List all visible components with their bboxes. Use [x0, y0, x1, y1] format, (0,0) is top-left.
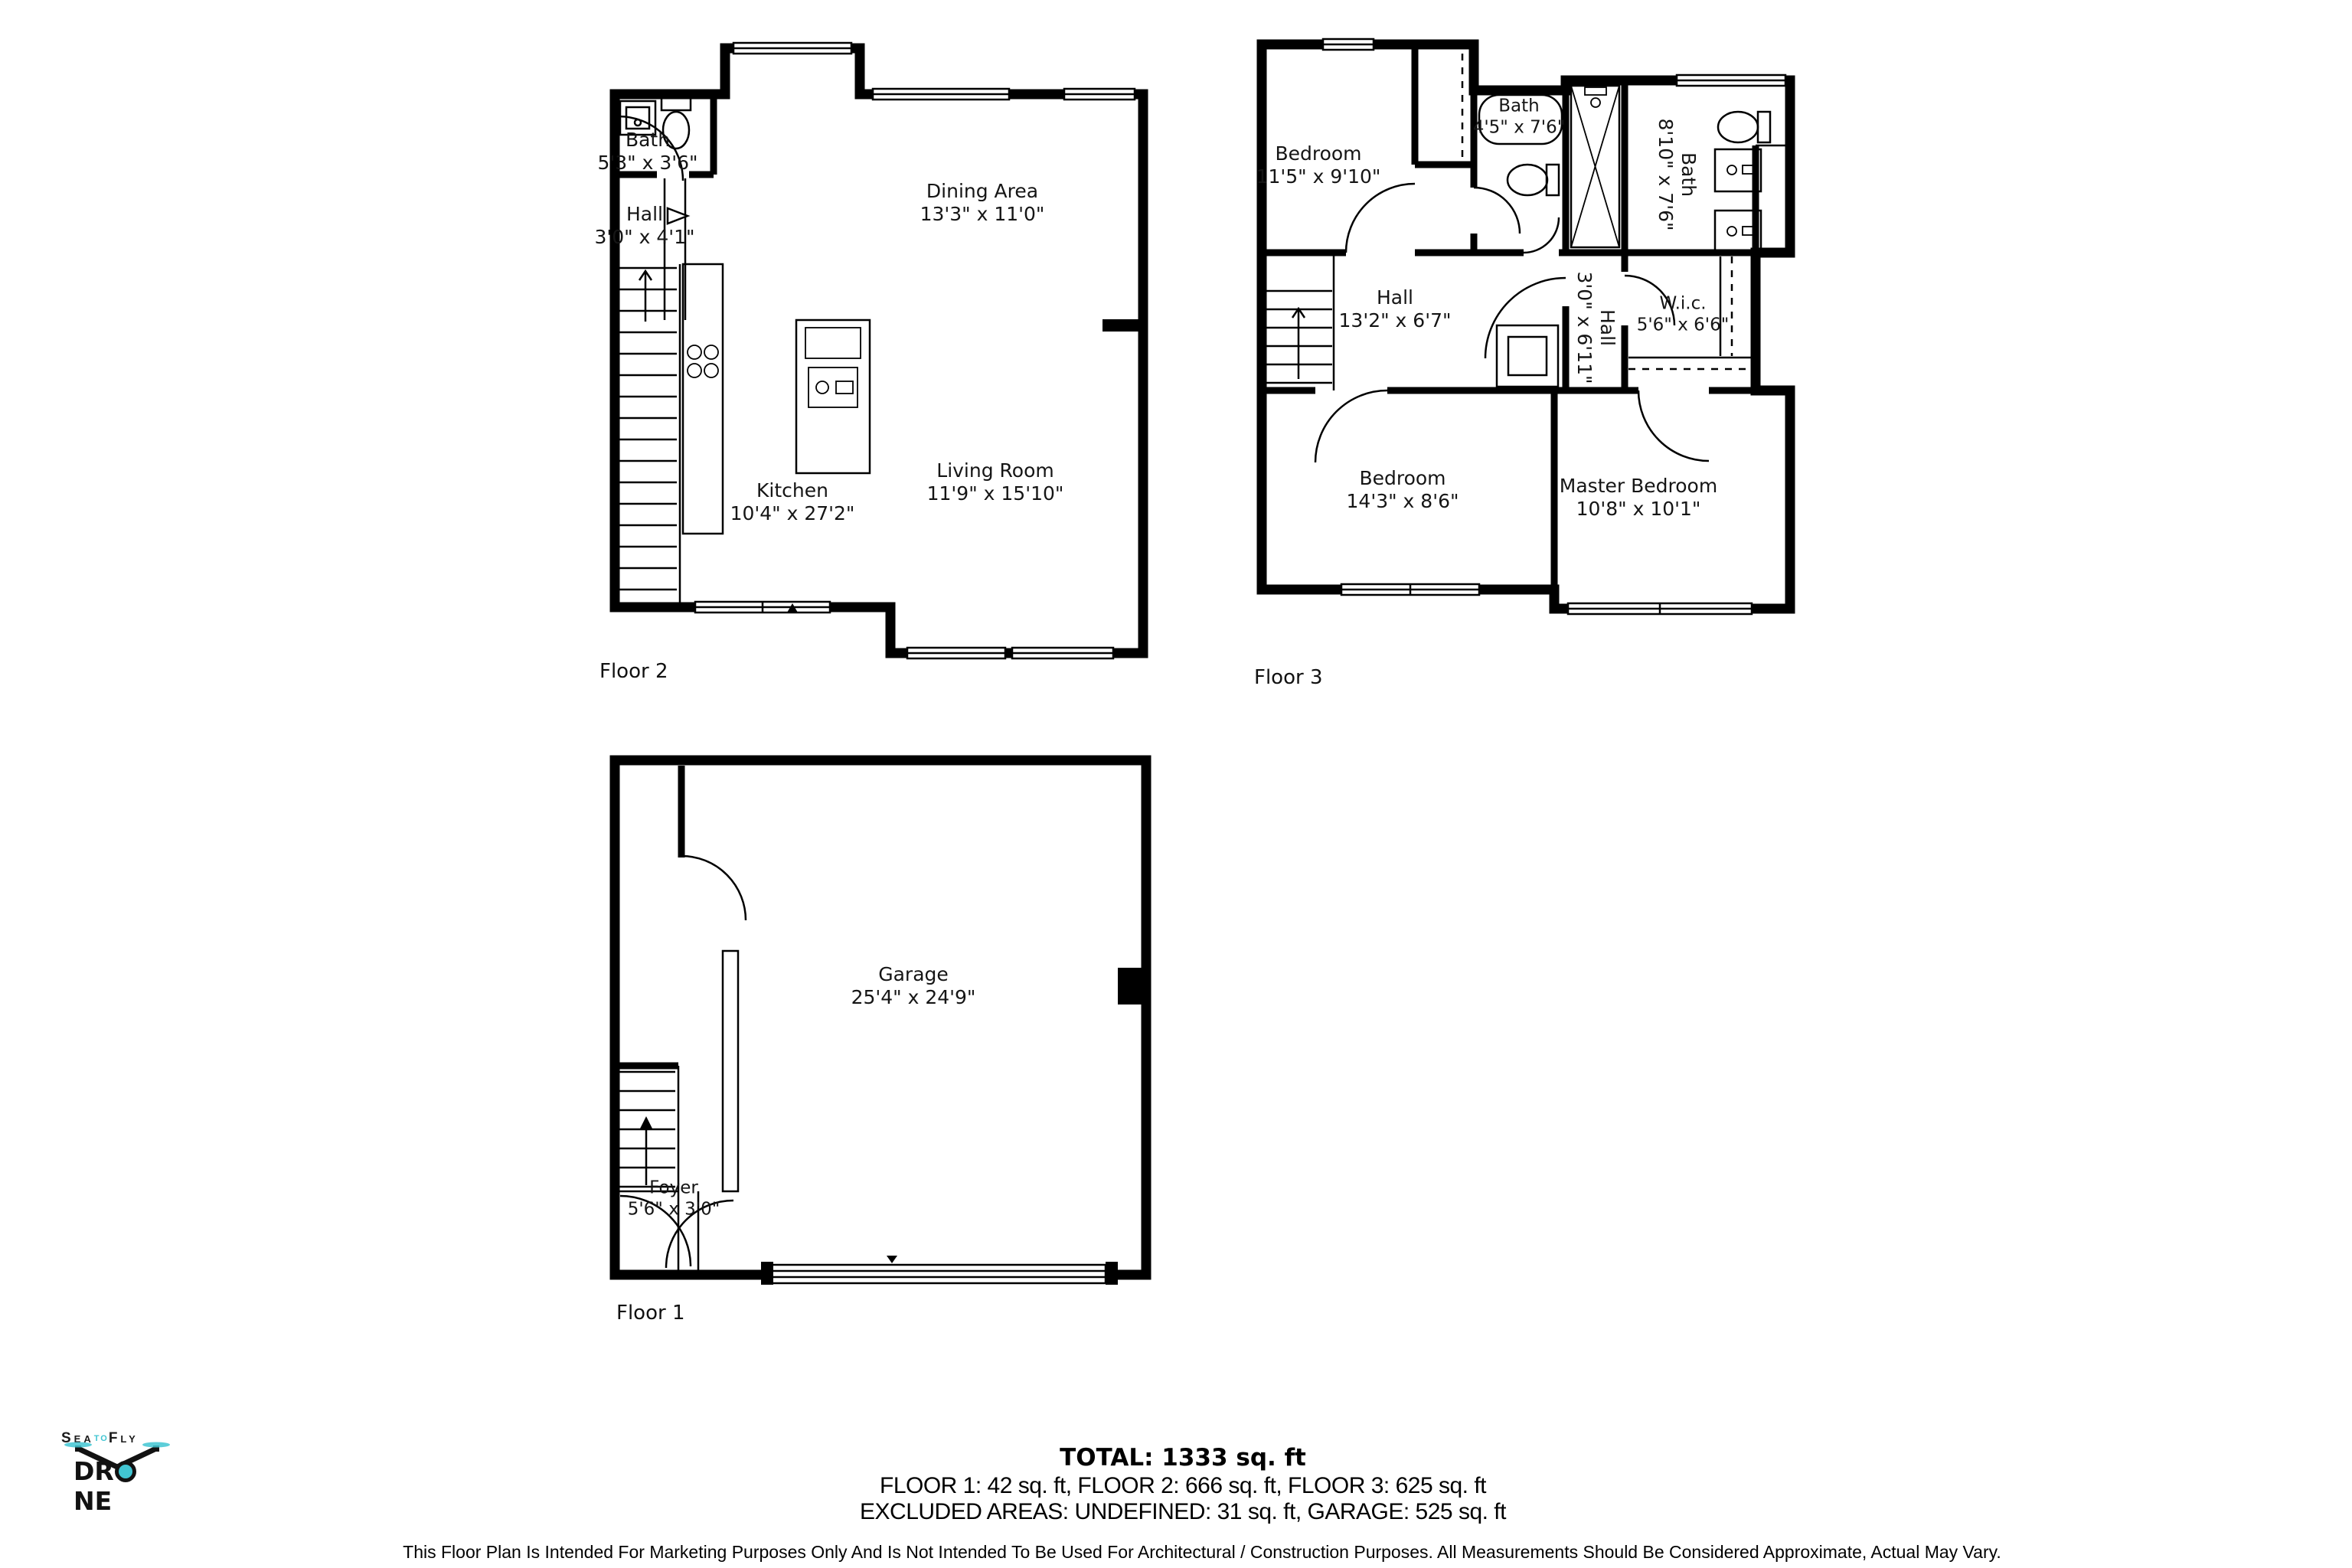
door-arc	[1638, 390, 1709, 461]
window	[873, 89, 1009, 100]
stairs-icon	[1265, 253, 1334, 390]
room-label-bath2: Bath8'10" x 7'6"	[1654, 119, 1700, 231]
sea-to-fly-drone-logo: SeatoFly DRNE	[60, 1430, 175, 1494]
window	[907, 648, 1005, 658]
window	[695, 602, 830, 612]
room-label-foyer: Foyer5'6" x 3'0"	[628, 1178, 720, 1220]
disclaimer-text: This Floor Plan Is Intended For Marketin…	[403, 1542, 2001, 1563]
stairs-icon	[615, 1066, 678, 1191]
room-label-wic: W.i.c.5'6" x 6'6"	[1637, 293, 1730, 335]
window	[1323, 39, 1374, 50]
room-label-living: Living Room11'9" x 15'10"	[927, 459, 1064, 505]
room-label-bath1: Bath4'5" x 7'6"	[1473, 96, 1566, 138]
window	[1064, 89, 1135, 100]
door-arc	[1315, 390, 1387, 462]
closet-icon	[1497, 325, 1558, 387]
room-label-hall2: Hall3'0" x 6'11"	[1573, 272, 1619, 384]
window	[1012, 648, 1113, 658]
door-arc	[1346, 184, 1415, 253]
floor2-title: Floor 2	[599, 660, 668, 683]
kitchen-counter	[683, 264, 723, 534]
stairs-icon	[617, 264, 680, 605]
excluded-areas-text: EXCLUDED AREAS: UNDEFINED: 31 sq. ft, GA…	[860, 1499, 1506, 1525]
stove-icon	[688, 345, 718, 377]
room-label-kitchen: Kitchen10'4" x 27'2"	[730, 479, 855, 525]
floor-plan-drawing	[0, 0, 2352, 1568]
logo-drone-word: DRNE	[73, 1456, 175, 1516]
camera-lens-icon	[115, 1461, 136, 1482]
room-label-hall-f2: Hall3'0" x 4'1"	[594, 203, 694, 249]
floor1-title: Floor 1	[616, 1302, 685, 1325]
floor-plan-page: Bath5'3" x 3'6" Hall3'0" x 4'1" Dining A…	[0, 0, 2352, 1568]
window	[1677, 75, 1785, 86]
toilet-icon	[1718, 112, 1770, 142]
room-label-bedroom1: Bedroom11'5" x 9'10"	[1256, 142, 1381, 188]
room-label-garage: Garage25'4" x 24'9"	[851, 963, 976, 1009]
room-label-bedroom2: Bedroom14'3" x 8'6"	[1347, 467, 1459, 513]
window	[1568, 603, 1752, 614]
closet-icon	[723, 951, 738, 1191]
room-label-master: Master Bedroom10'8" x 10'1"	[1560, 475, 1717, 521]
window	[1341, 584, 1479, 595]
door-arc	[1524, 217, 1559, 253]
door-arc	[681, 856, 746, 920]
kitchen-island	[796, 320, 870, 473]
garage-door	[772, 1265, 1106, 1283]
shower-icon	[1571, 86, 1619, 247]
floor3-title: Floor 3	[1254, 666, 1323, 689]
floor-areas-text: FLOOR 1: 42 sq. ft, FLOOR 2: 666 sq. ft,…	[880, 1473, 1486, 1499]
door-arc	[1474, 188, 1520, 234]
toilet-icon	[1508, 165, 1559, 195]
window	[733, 43, 851, 54]
total-area-text: TOTAL: 1333 sq. ft	[1060, 1444, 1306, 1472]
direction-arrow	[887, 1256, 897, 1263]
room-label-bath-f2: Bath5'3" x 3'6"	[597, 129, 697, 175]
room-label-dining: Dining Area13'3" x 11'0"	[920, 180, 1045, 226]
room-label-hall1: Hall13'2" x 6'7"	[1339, 286, 1452, 332]
